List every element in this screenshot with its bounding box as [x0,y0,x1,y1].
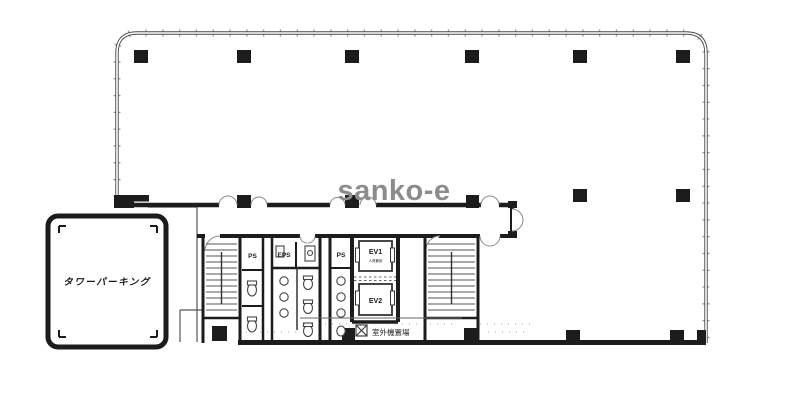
stair-right-treads [428,244,475,310]
outdoor-unit-label: 室外機置場 [372,327,410,337]
outdoor-unit-icon [356,325,367,336]
floorplan-canvas: sanko-e タワーパーキング PS EPS PS EV1 人荷兼用 EV2 … [0,0,791,400]
parking-label: タワーパーキング [63,276,151,288]
ev2-label: EV2 [369,298,382,305]
ev1-note-label: 人荷兼用 [369,258,383,263]
elevator-ev1-cab [359,241,392,271]
floorplan-drawing: sanko-e タワーパーキング PS EPS PS EV1 人荷兼用 EV2 … [0,0,791,400]
corridor-walls [133,201,517,238]
ev1-label: EV1 [369,249,382,256]
ps2-label: PS [337,252,346,259]
eps-label: EPS [277,252,291,259]
ps1-label: PS [248,253,257,260]
watermark: sanko-e [337,175,450,207]
stair-left-treads [206,244,237,310]
